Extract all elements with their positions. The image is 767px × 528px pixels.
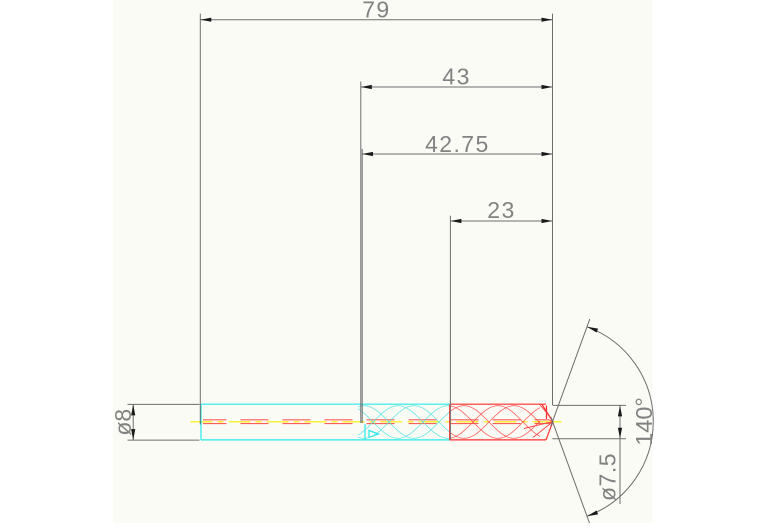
svg-text:140°: 140° — [631, 397, 657, 446]
svg-text:ø8: ø8 — [110, 409, 136, 436]
svg-text:23: 23 — [487, 197, 515, 223]
svg-text:79: 79 — [362, 0, 390, 22]
svg-text:ø7.5: ø7.5 — [595, 453, 621, 501]
svg-text:43: 43 — [442, 63, 470, 89]
svg-text:42.75: 42.75 — [425, 131, 490, 157]
